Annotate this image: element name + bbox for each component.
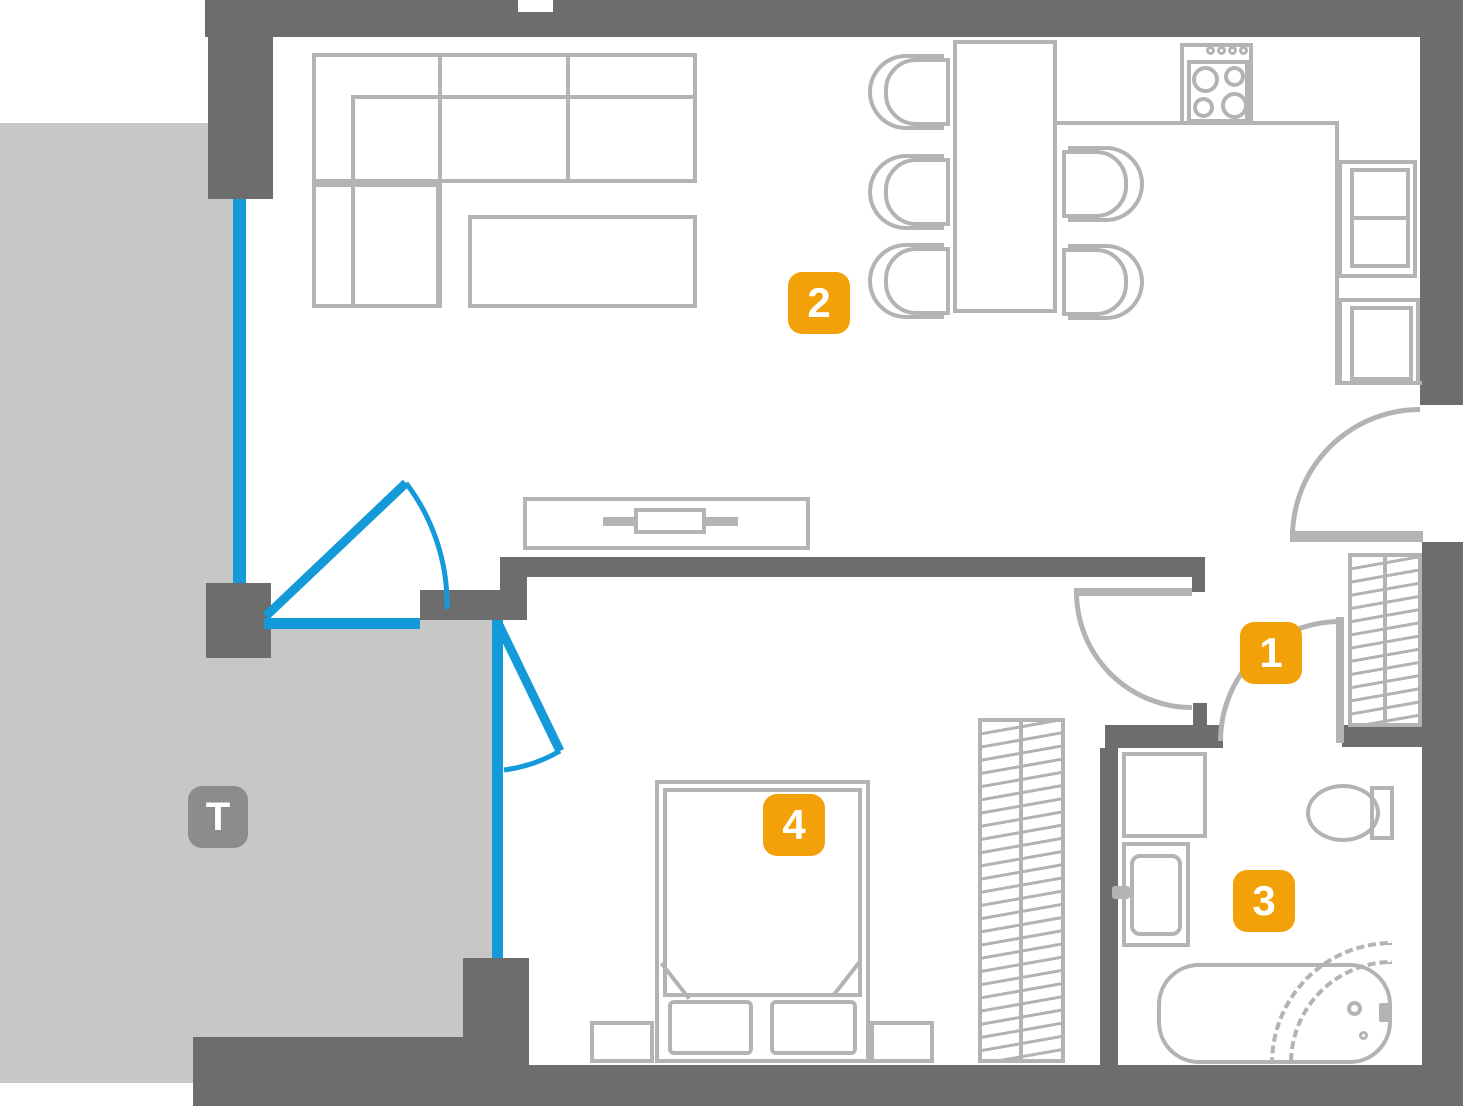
balcony-door-leaf [266,483,406,616]
floor-plan: 1 2 3 4 T [0,0,1463,1106]
badge-room-1-hallway[interactable]: 1 [1240,622,1302,684]
bathtub-tap [1379,1003,1392,1022]
wall-bottom-main [529,1065,1463,1106]
wall-right-top [1420,0,1463,405]
wall-post-hall [1193,703,1207,727]
sofa-divider-1 [438,53,442,308]
kitchen-counter-edge [1057,121,1339,125]
sofa-top-section [312,53,697,183]
bedroom-terrace-door-arc [504,751,560,770]
badge-room-2-living[interactable]: 2 [788,272,850,334]
badge-label: 4 [782,801,805,849]
dining-table [953,40,1057,313]
terrace-floor-extension [233,620,492,1037]
fridge-divider [1350,216,1410,220]
chair-seat [1062,248,1128,316]
bedroom-door-arc [1074,592,1192,710]
stove-knob [1206,46,1215,55]
bedroom-wardrobe-divider [1019,718,1023,1063]
toilet-tank [1370,786,1394,840]
sofa-armrest-line [351,95,355,308]
wall-right-bottom [1422,542,1463,1106]
window-living-west [233,199,246,583]
stove-burner [1224,66,1245,87]
badge-terrace[interactable]: T [188,786,248,848]
wall-post-interior-west [500,557,527,620]
window-bedroom-west [492,620,503,958]
balcony-door-threshold [264,618,420,629]
bed-pillow [668,1000,753,1055]
tv-screen [634,508,706,534]
badge-label: T [206,795,230,840]
stove-burner [1192,66,1219,93]
wall-block-bedroom-left [463,958,529,1065]
chair-seat [884,247,950,315]
toilet-bowl [1306,784,1380,842]
washing-machine [1122,752,1207,838]
bathtub-drain [1347,1001,1362,1016]
sofa-backrest-line [353,95,697,99]
wall-bathroom-top-right [1342,725,1423,747]
wall-bathroom-top-left [1105,725,1223,748]
entrance-door-arc [1290,407,1420,537]
nightstand-right [870,1021,934,1063]
bathtub-overflow [1359,1031,1368,1040]
wall-top [205,0,1463,37]
chair-seat [884,58,950,126]
badge-label: 3 [1252,877,1275,925]
hallway-closet-divider [1383,553,1387,727]
badge-room-3-bathroom[interactable]: 3 [1233,870,1295,932]
wall-pillar-left [208,33,273,199]
wall-block-balcony-left [206,583,271,658]
badge-label: 2 [807,279,830,327]
nightstand-left [590,1021,654,1063]
chair-seat [1062,150,1128,218]
sofa-divider-2 [566,53,570,183]
stove-knob [1228,46,1237,55]
stove-burner [1221,92,1248,119]
kitchen-cabinet-inner [1350,306,1413,381]
top-wall-notch [518,0,553,12]
coffee-table [468,215,697,308]
bed-pillow [770,1000,857,1055]
sofa-left-section [312,183,440,308]
badge-label: 1 [1259,629,1282,677]
sink-tap [1112,886,1130,899]
stove-knob [1239,46,1248,55]
wall-bathroom-left [1100,748,1118,1065]
sink-basin [1130,854,1182,936]
badge-room-4-bedroom[interactable]: 4 [763,794,825,856]
wall-interior-living-bedroom [527,557,1205,577]
chair-seat [884,158,950,226]
stove-knob [1217,46,1226,55]
wall-step-hall [1192,577,1205,592]
stove-burner [1193,97,1214,118]
bedroom-terrace-door-leaf [499,625,560,751]
terrace-floor [0,123,233,1083]
